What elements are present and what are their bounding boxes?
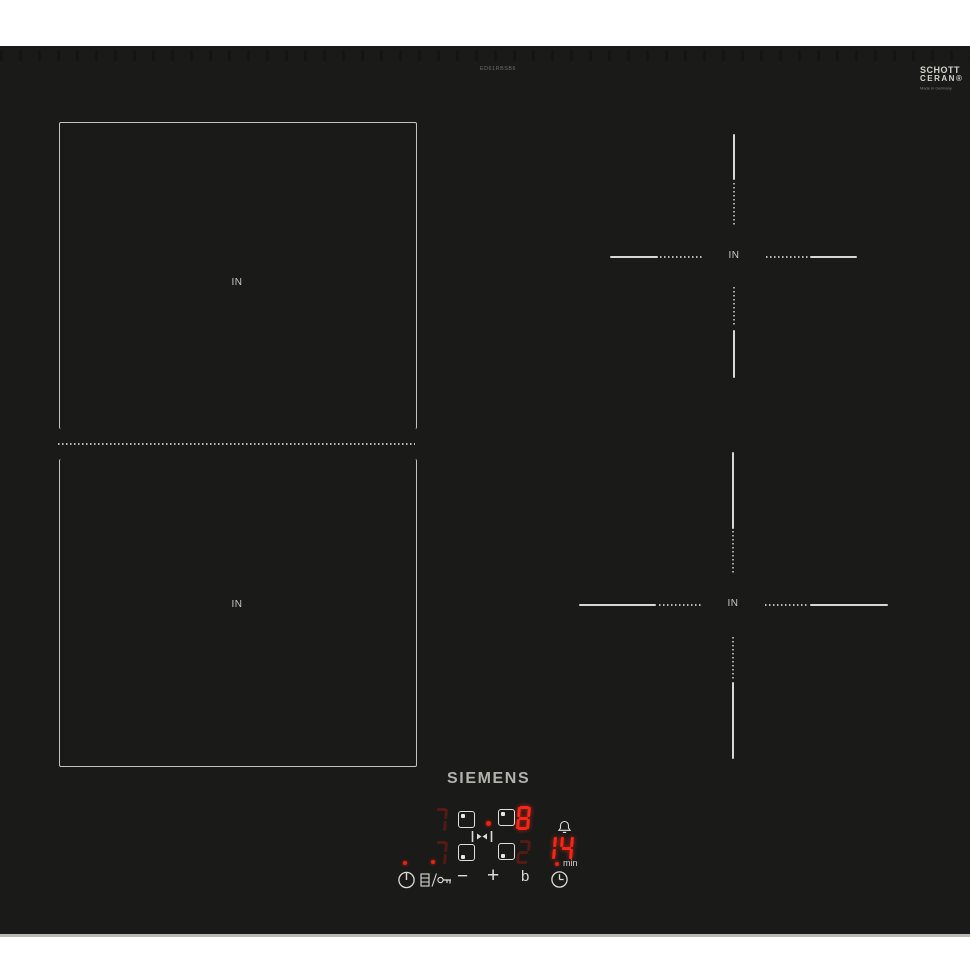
display-back-left [434, 808, 447, 832]
zone-line [810, 256, 857, 258]
boost-button[interactable]: b [521, 868, 529, 885]
product-image: ED61RBSB6 SCHOTT CERAN® Made in Germany … [0, 0, 970, 971]
selected-zone-indicator-dot [486, 821, 491, 826]
clock-icon[interactable] [550, 870, 569, 889]
zone-line [765, 604, 808, 606]
power-indicator-dot [403, 861, 407, 865]
display-back-right [517, 806, 530, 830]
zone-line [733, 183, 735, 225]
glass-top-edge [0, 50, 970, 61]
zone-line [732, 637, 734, 679]
schott-subtext: Made in Germany [920, 87, 960, 91]
lock-indicator-dot [431, 860, 435, 864]
siemens-logo: SIEMENS [447, 770, 530, 788]
zone-line [732, 452, 734, 529]
bell-icon [557, 820, 572, 834]
zone-line [732, 682, 734, 759]
flex-front-in-label: IN [225, 599, 249, 610]
zone-line [732, 531, 734, 573]
flex-back-in-label: IN [225, 277, 249, 288]
zone-line [733, 287, 735, 327]
timer-indicator-dot [555, 862, 559, 866]
flex-zone-front [59, 459, 417, 767]
zone-line [733, 134, 735, 180]
plus-button[interactable]: + [487, 864, 499, 888]
zone-line [579, 604, 656, 606]
zone-line [733, 330, 735, 378]
zone-line [659, 604, 702, 606]
zone-line [660, 256, 702, 258]
right-back-in-label: IN [722, 250, 746, 261]
timer-min-label: min [563, 858, 578, 868]
display-timer [543, 836, 573, 860]
flex-zone-divider [58, 443, 415, 445]
zone-key-front-left[interactable] [458, 844, 475, 861]
model-number: ED61RBSB6 [453, 66, 543, 71]
flex-zone-back [59, 122, 417, 429]
zone-line [610, 256, 658, 258]
zone-key-back-left[interactable] [458, 811, 475, 828]
zone-line [810, 604, 888, 606]
schott-ceran-logo: SCHOTT CERAN® Made in Germany [920, 66, 970, 92]
power-icon[interactable] [397, 870, 416, 889]
minus-button[interactable]: − [457, 866, 468, 888]
display-front-left [434, 841, 447, 865]
schott-line2: CERAN® [920, 75, 970, 83]
right-front-in-label: IN [721, 598, 745, 609]
display-front-right [517, 840, 530, 864]
zone-key-front-right[interactable] [498, 843, 515, 860]
zone-line [766, 256, 808, 258]
bridge-icon [471, 830, 493, 843]
key-lock-icon[interactable] [420, 872, 452, 888]
zone-key-back-right[interactable] [498, 809, 515, 826]
